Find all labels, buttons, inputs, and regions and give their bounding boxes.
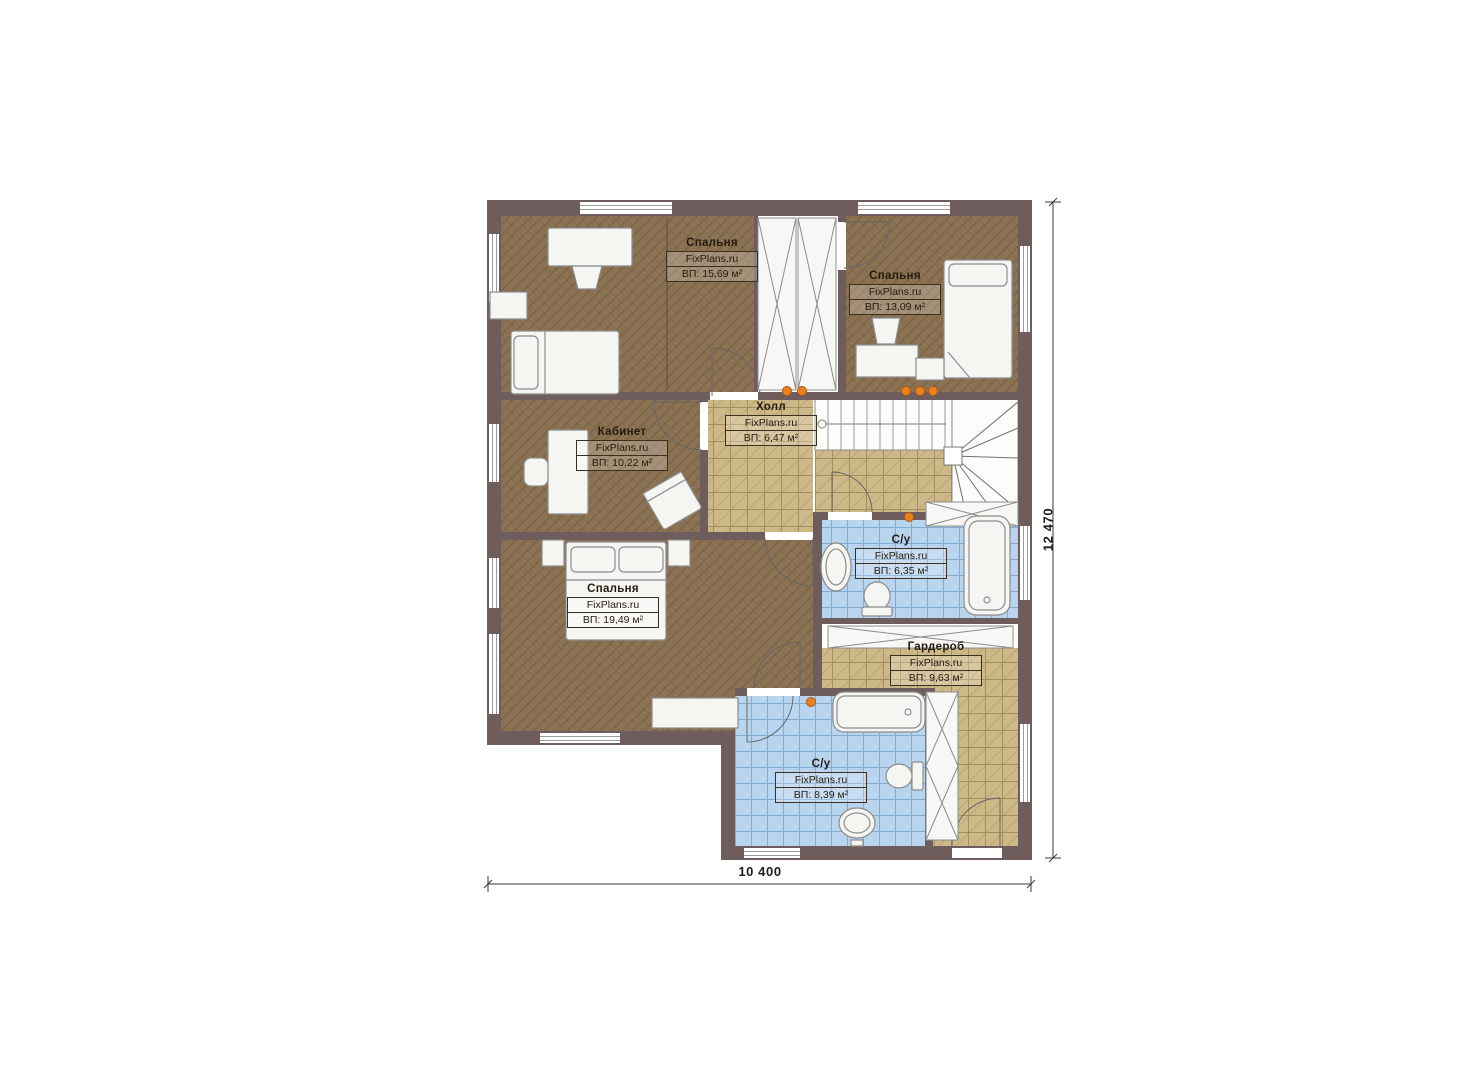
wardrobe-cabinet: [926, 692, 958, 840]
wardrobe-cabinet: [758, 218, 796, 390]
room-name: Спальня: [869, 270, 921, 282]
room-name: Кабинет: [598, 426, 647, 438]
room-area: ВП: 9,63 м²: [891, 670, 981, 685]
room-label-bedroom-topleft: Спальня FixPlans.ru ВП: 15,69 м²: [666, 237, 758, 282]
bathtub: [964, 516, 1010, 615]
window: [1020, 526, 1030, 600]
window: [540, 733, 620, 743]
window: [744, 848, 800, 858]
nightstand: [916, 358, 944, 380]
window: [1020, 724, 1030, 802]
pillow: [571, 547, 615, 572]
room-label-wardrobe: Гардероб FixPlans.ru ВП: 9,63 м²: [890, 641, 982, 686]
toilet: [862, 582, 892, 616]
room-name: Холл: [756, 401, 786, 413]
wall-office-right: [700, 450, 708, 540]
room-label-bedroom-master: Спальня FixPlans.ru ВП: 19,49 м²: [567, 583, 659, 628]
wall-su2-jamb: [735, 688, 747, 696]
bathtub: [833, 692, 925, 732]
wall-office-jamb: [700, 396, 708, 402]
floor-plan-page: Спальня FixPlans.ru ВП: 15,69 м² Спальня…: [0, 0, 1474, 1080]
room-area: ВП: 13,09 м²: [850, 299, 940, 314]
toilet: [886, 762, 923, 790]
light-dot: [783, 387, 792, 396]
wall-h1-right: [758, 392, 1018, 400]
room-label-box: FixPlans.ru ВП: 6,35 м²: [855, 548, 947, 579]
room-brand: FixPlans.ru: [577, 441, 667, 455]
window: [489, 424, 499, 482]
light-dot: [916, 387, 925, 396]
room-name: С/у: [892, 534, 911, 546]
room-brand: FixPlans.ru: [568, 598, 658, 612]
wall-h2-left: [501, 532, 765, 540]
light-dot: [929, 387, 938, 396]
room-brand: FixPlans.ru: [891, 656, 981, 670]
room-label-box: FixPlans.ru ВП: 19,49 м²: [567, 597, 659, 628]
room-label-bedroom-topright: Спальня FixPlans.ru ВП: 13,09 м²: [849, 270, 941, 315]
chair: [572, 266, 602, 289]
nightstand: [490, 292, 527, 319]
room-area: ВП: 6,47 м²: [726, 430, 816, 445]
room-name: Спальня: [686, 237, 738, 249]
window: [858, 202, 950, 214]
window: [1020, 246, 1030, 332]
room-label-box: FixPlans.ru ВП: 6,47 м²: [725, 415, 817, 446]
wall-bath-bottom: [822, 618, 1018, 624]
light-dot: [905, 513, 914, 522]
wall-bedroom-tr: [838, 270, 846, 392]
room-name: Гардероб: [908, 641, 965, 653]
window: [489, 634, 499, 714]
room-brand: FixPlans.ru: [667, 252, 757, 266]
wall-bath-top-jamb: [815, 512, 828, 520]
room-brand: FixPlans.ru: [850, 285, 940, 299]
room-area: ВП: 19,49 м²: [568, 612, 658, 627]
light-dot: [798, 387, 807, 396]
wall-exterior-wing-left: [721, 745, 735, 846]
room-brand: FixPlans.ru: [776, 773, 866, 787]
dresser: [652, 698, 738, 728]
wardrobe-cabinet: [798, 218, 836, 390]
bed: [511, 331, 619, 394]
dimension-height-label: 12 470: [1041, 500, 1056, 560]
desk: [548, 228, 632, 266]
room-label-box: FixPlans.ru ВП: 9,63 м²: [890, 655, 982, 686]
pillow: [619, 547, 663, 572]
wall-exterior-top: [487, 200, 1032, 216]
room-area: ВП: 8,39 м²: [776, 787, 866, 802]
room-label-bathroom-bottom: С/у FixPlans.ru ВП: 8,39 м²: [775, 758, 867, 803]
floor-plan-canvas: [0, 0, 1474, 1080]
room-label-box: FixPlans.ru ВП: 15,69 м²: [666, 251, 758, 282]
room-label-box: FixPlans.ru ВП: 8,39 м²: [775, 772, 867, 803]
light-dot: [902, 387, 911, 396]
pillow: [514, 336, 538, 389]
room-label-box: FixPlans.ru ВП: 13,09 м²: [849, 284, 941, 315]
window: [489, 558, 499, 608]
bed: [944, 260, 1012, 378]
room-label-box: FixPlans.ru ВП: 10,22 м²: [576, 440, 668, 471]
room-brand: FixPlans.ru: [726, 416, 816, 430]
stairs-start-marker: [818, 420, 826, 428]
room-label-office: Кабинет FixPlans.ru ВП: 10,22 м²: [576, 426, 668, 471]
room-label-hall: Холл FixPlans.ru ВП: 6,47 м²: [725, 401, 817, 446]
room-area: ВП: 6,35 м²: [856, 563, 946, 578]
nightstand: [542, 540, 564, 566]
room-label-bathroom-top: С/у FixPlans.ru ВП: 6,35 м²: [855, 534, 947, 579]
stairs-newel: [944, 447, 962, 465]
desk: [856, 345, 918, 377]
dimension-width-label: 10 400: [728, 864, 792, 879]
sink: [821, 543, 851, 591]
pillow: [949, 264, 1007, 286]
window: [580, 202, 672, 214]
wall-v-center: [813, 512, 822, 696]
chair: [872, 318, 900, 344]
room-area: ВП: 10,22 м²: [577, 455, 667, 470]
room-area: ВП: 15,69 м²: [667, 266, 757, 281]
nightstand: [668, 540, 690, 566]
chair: [524, 458, 548, 486]
light-dot: [807, 698, 816, 707]
room-brand: FixPlans.ru: [856, 549, 946, 563]
room-name: Спальня: [587, 583, 639, 595]
room-name: С/у: [812, 758, 831, 770]
